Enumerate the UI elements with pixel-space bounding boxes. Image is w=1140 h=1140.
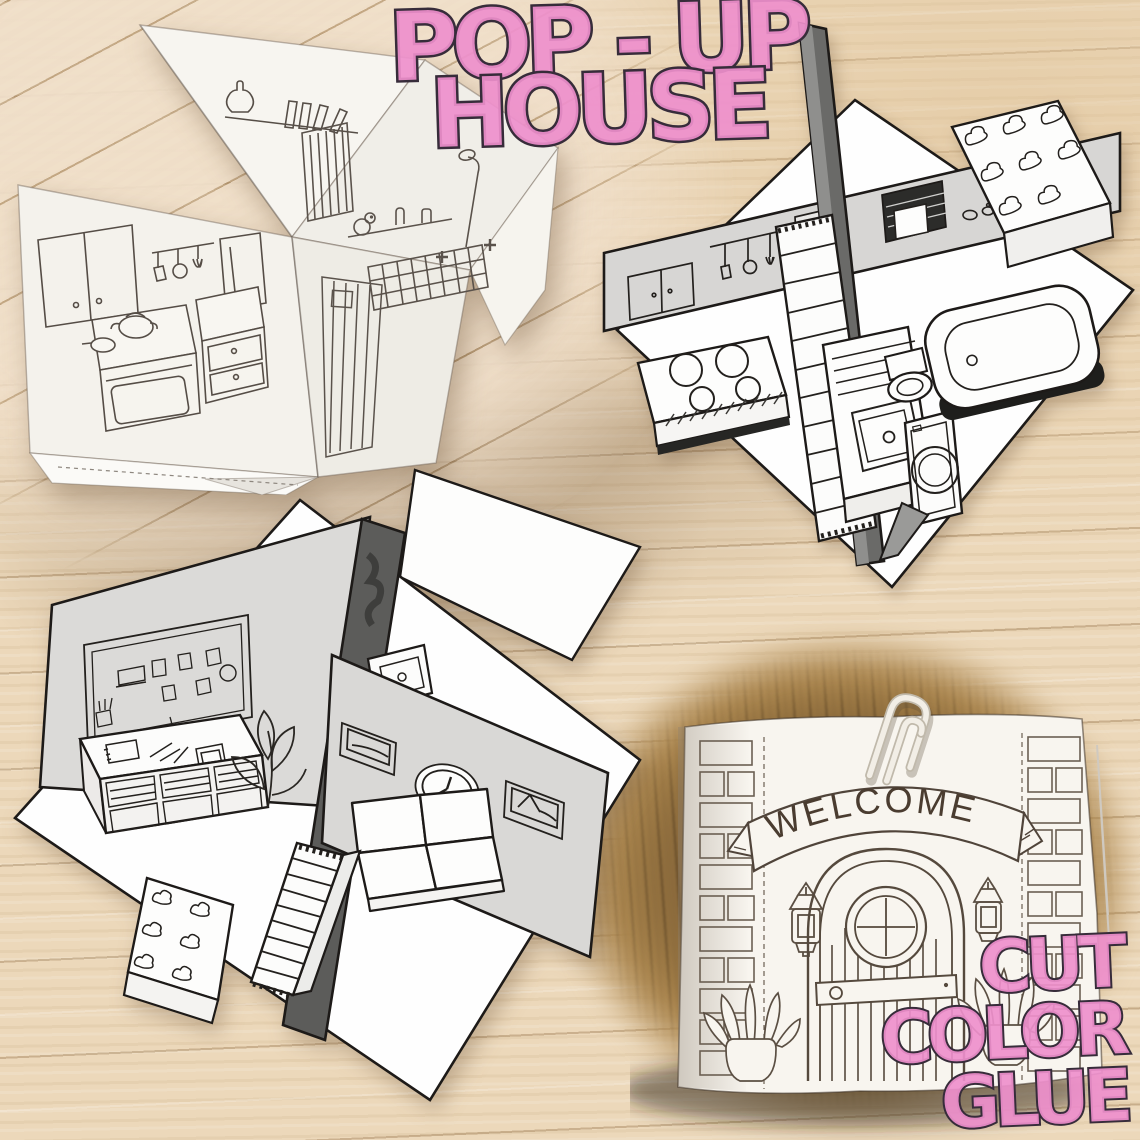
popup-render-office-livingroom bbox=[0, 455, 650, 1140]
right-fold-panel bbox=[292, 237, 470, 477]
title-line2: HOUSE bbox=[429, 63, 762, 159]
cta-text-block: CUT COLOR GLUE bbox=[850, 928, 1129, 1140]
product-collage: WELCOME bbox=[0, 0, 1140, 1140]
sofa-illustration bbox=[352, 789, 504, 911]
